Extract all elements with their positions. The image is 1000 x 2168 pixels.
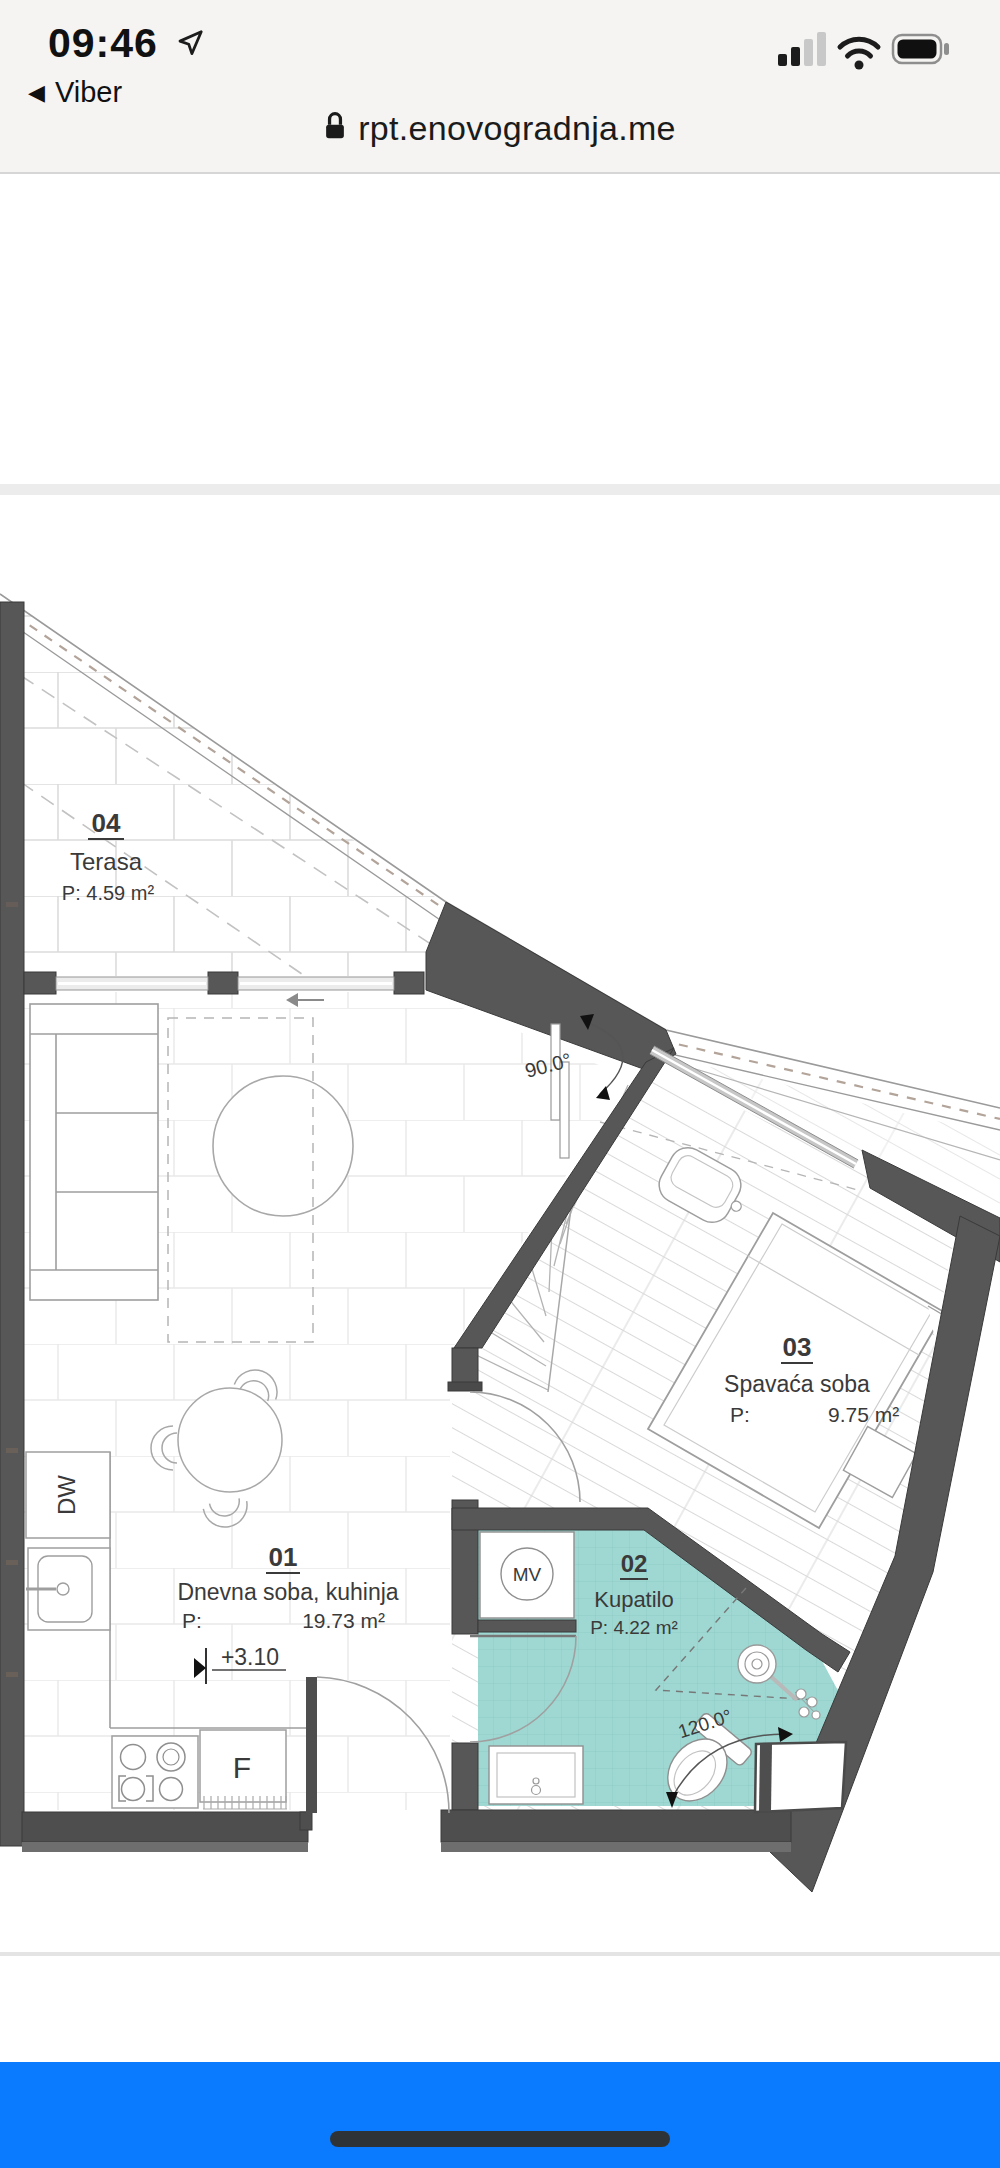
room-name-dnevna: Dnevna soba, kuhinja [177,1579,398,1605]
bottom-divider-band [0,1952,1000,1956]
lock-icon [324,111,346,145]
kitchen-sink [26,1548,110,1630]
dishwasher-label: DW [53,1475,80,1515]
vent-label: MV [513,1564,542,1585]
room-name-kupatilo: Kupatilo [594,1587,674,1612]
room-area-kupatilo: P: 4.22 m² [590,1617,678,1638]
room-name-terasa: Terasa [70,848,143,875]
clock: 09:46 [48,20,158,67]
terrace-floor [0,610,448,1000]
address-bar[interactable]: rpt.enovogradnja.me [0,100,1000,156]
browser-chrome: 09:46 ◀ Viber [0,0,1000,174]
stove [112,1736,198,1808]
room-number-spavaca: 03 [783,1332,812,1362]
room-area-prefix-spavaca: P: [730,1403,750,1426]
coffee-table [213,1076,353,1216]
room-area-terasa: P: 4.59 m² [62,882,155,904]
bathroom-sink [489,1746,583,1804]
fridge-label: F [233,1751,251,1784]
sofa [30,1004,158,1300]
room-number-kupatilo: 02 [621,1550,648,1577]
battery-icon [893,35,949,63]
level-value: +3.10 [221,1644,279,1670]
cellular-signal-icon [778,32,826,66]
room-area-spavaca: 9.75 m² [828,1403,899,1426]
room-name-spavaca: Spavaća soba [724,1371,870,1397]
home-indicator[interactable] [330,2131,670,2147]
floor-plan-image[interactable]: 04 Terasa P: 4.59 m² 01 Dnevna soba, kuh… [0,560,1000,1952]
room-area-prefix-dnevna: P: [182,1609,202,1632]
room-number-terasa: 04 [92,808,121,838]
location-arrow-icon [175,28,205,62]
status-icons [778,30,958,78]
shower-door [755,1742,846,1812]
wifi-icon [840,39,878,69]
room-number-dnevna: 01 [269,1542,298,1572]
bottom-toolbar[interactable] [0,2062,1000,2168]
room-area-dnevna: 19.73 m² [302,1609,385,1632]
image-divider-band [0,484,1000,495]
url-text: rpt.enovogradnja.me [358,109,676,148]
